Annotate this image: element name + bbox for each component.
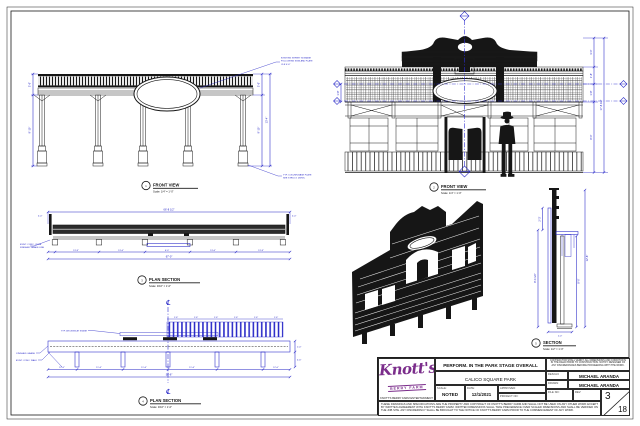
note-line: FOLLOWING SIGN AND PLATE [281,60,313,63]
dim-text: 1'-6" [254,317,259,319]
view-scale: Scale: 3/16" = 1'-0" [149,284,171,288]
front2-dim-left: 1'-8" [336,83,342,103]
view-scale: Scale: 1/4" = 1'-0" [153,189,174,193]
front1-label: 1 FRONT VIEW Scale: 1/4" = 1'-0" [142,181,198,193]
dim-text: 9'-10" [28,127,32,134]
dim-text: 11'-6" [189,367,195,369]
dim-text: 12'-0" [59,367,65,369]
general-note-text: CONTRACTOR SHALL VERIFY ALL DIMENSIONS A… [549,360,628,368]
scale-cell: SCALE: NOTED [435,385,465,401]
file-number-label: FILE NO: [548,391,560,394]
view-title: SECTION [543,340,562,345]
plan1-dim-bottom: 13'-9" 13'-6" 6'-0" 13'-6" 13'-9" 67'-0" [47,250,291,260]
plan2-dims-right: 2'-0" 4'-6" [294,340,302,368]
facade-oval-sign [433,79,497,104]
dim-text: 8'-4 1/2" [533,273,537,283]
view-title: PLAN SECTION [149,277,180,282]
dim-text: 1'-8" [336,90,340,95]
sheet-number-cell: 3 18 [601,389,630,416]
dim-text: 4'-0" [292,216,297,218]
logo-cell: Knott's BERRY FARM KNOTT'S BERRY FARM EN… [378,358,435,401]
plan2-deck: 1'-6" 1'-6" 1'-6" 1'-6" 1'-6" 1'-6" [120,317,283,340]
view-section: 8'-4 1/2" 2'-3" 8'-0" 12'-8" 2'-0" 5 SEC… [532,188,589,351]
dim-text: 13'-4" [265,117,269,124]
dim-text: 1'-8" [589,73,593,78]
note-line: SEE STRUCT. DWGS. [283,178,306,180]
dim-text: 17'-8 1/2" [599,99,603,110]
view-scale: Scale: 3/16" = 1'-0" [150,405,172,409]
note-line: FINISHED GRADE LINE [20,246,45,249]
dim-text: 8'-0" [589,134,593,139]
front1-note-bottom: TYP. COLUMN BASE PLATE SEE STRUCT. DWGS. [248,165,312,180]
date-cell: DATE: 12/1/2021 [465,385,498,401]
dim-text: 66'-8 1/2" [164,208,175,212]
dim-text: 1'-8" [589,90,593,95]
dim-text: 1'-6" [194,317,199,319]
plan2-dims-bottom: 12'-0" 11'-6" 11'-6" 11'-6" 12'-0" 58'-6… [47,367,291,378]
view-number: 3 [141,279,143,283]
view-number: 4 [142,400,144,404]
front2-dims-right: 3'-0" 1'-8" 1'-8" 8'-0" 17'-8 1/2" [583,37,608,174]
revision-cell: REV: [573,389,601,401]
dim-text: 1'-6" [274,317,279,319]
dim-text: 9'-10" [257,127,261,134]
drawn-by-name: MICHAEL ARANDA [569,383,629,388]
plan1-notes: EXIST. CONC. CURB FINISHED GRADE LINE [20,240,50,249]
dim-text: 11'-6" [141,367,147,369]
designed-by-name: MICHAEL ARANDA [569,374,629,379]
drawn-label: DRAWN: [548,382,559,385]
dim-text: 13'-9" [258,250,264,252]
sheet-total: 18 [618,405,627,414]
view-title: FRONT VIEW [153,183,179,188]
dim-text: 2'-0" [558,336,563,338]
view-number: 2 [433,186,435,190]
general-note-cell: CONTRACTOR SHALL VERIFY ALL DIMENSIONS A… [546,358,630,371]
project-name: CALICO SQUARE PARK [436,377,545,382]
sheet-title: PERFORM. IN THE PARK STAGE OVERALL [436,363,545,368]
view-scale: Scale: 1/4" = 1'-0" [441,191,462,195]
section-label: 5 SECTION Scale: 1/2" = 1'-0" [532,339,576,351]
dim-text: 13'-6" [210,250,216,252]
view-front-2: 3'-0" 1'-8" 1'-8" 8'-0" 17'-8 1/2" 1'-8"… [334,12,628,195]
dim-text: 3'-6" [257,82,261,87]
view-isometric [352,201,483,344]
dim-text: 67'-0" [166,255,173,259]
dim-text: 3'-6" [28,82,32,87]
view-front-1: 3'-6" 9'-10" 3'-6" 9'-10" 13'-4" EXISTIN… [28,57,314,194]
section-dims: 8'-4 1/2" 2'-3" 8'-0" 12'-8" 2'-0" [533,189,589,338]
designed-label-cell: DESIGN: [546,371,568,380]
revision-label: REV: [575,391,581,394]
view-scale: Scale: 1/2" = 1'-0" [543,347,564,351]
file-number-cell: FILE NO: [546,389,573,401]
view-number: 5 [535,342,537,346]
dim-text: 58'-6" [166,373,173,377]
datum-marker-top-icon [460,12,469,21]
centerline-symbol: ℄ [166,388,171,396]
dim-text: 1'-6" [234,317,239,319]
designed-label: DESIGN: [548,373,559,376]
note-line: EXIST. CONC. CURB [20,244,42,246]
scale-label: SCALE: [437,387,447,390]
dim-text: 2'-3" [538,216,542,221]
facade-porch [345,102,583,118]
inner-border [11,11,629,415]
note-line: TYP. COLUMN BASE PLATE [283,173,312,176]
disclaimer-cell: THESE DRAWINGS AND SPECIFICATIONS ARE TH… [378,401,601,416]
dim-text: 8'-0" [577,278,581,283]
centerline-symbol: ℄ [166,299,171,307]
note-line: TYP. DECKING AT STAGE [61,330,88,333]
knotts-logo: Knott's [379,361,435,378]
knotts-logo-banner: BERRY FARM [388,384,426,392]
project-cell: CALICO SQUARE PARK [435,371,546,385]
plan2-slab [48,341,290,367]
plan1-beam: 4'-0" 4'-0" [38,214,297,247]
approved-label: APPROVED: [500,387,516,390]
dim-text: 4'-0" [38,216,43,218]
dim-text: 13'-6" [118,250,124,252]
plan1-label: 3 PLAN SECTION Scale: 3/16" = 1'-0" [138,276,200,288]
view-plan-1: 66'-8 1/2" 4'-0" 4'-0" 13'-9" 13'-6" 6'-… [20,208,297,288]
view-plan-2: ℄ ℄ 1'-6" 1'-6" 1'-6" 1'-6" 1'-6" 1'-6" [16,299,302,409]
plan2-label: 4 PLAN SECTION Scale: 3/16" = 1'-0" [139,397,201,409]
plan2-notes: TYP. DECKING AT STAGE FINISHED GRADE EXI… [16,330,120,363]
scale-value: NOTED [436,392,464,397]
job-number-cell: PROJECT NO: [498,393,546,401]
dim-text: 12'-0" [273,367,279,369]
note-line: FINISHED GRADE [16,352,35,355]
oval-sign-blank [134,77,200,111]
view-title: PLAN SECTION [150,398,181,403]
view-number: 1 [145,184,147,188]
drawn-value-cell: MICHAEL ARANDA [568,380,630,389]
designed-value-cell: MICHAEL ARANDA [568,371,630,380]
front2-label: 2 FRONT VIEW Scale: 1/4" = 1'-0" [430,183,486,195]
dim-text: 13'-9" [73,250,79,252]
dim-text: 6'-0" [165,250,170,252]
note-line: CLR 4'-6" [281,64,291,66]
approved-cell: APPROVED: [498,385,546,393]
dim-text: 1'-6" [174,317,179,319]
dim-text: 4'-6" [297,360,302,362]
title-block: Knott's BERRY FARM KNOTT'S BERRY FARM EN… [377,357,629,415]
dim-text: 12'-8" [585,255,589,262]
dim-text: 3'-0" [589,49,593,54]
dim-text: 1'-6" [214,317,219,319]
note-line: EXIST. CONC. WALK [16,359,38,362]
drawn-label-cell: DRAWN: [546,380,568,389]
view-title: FRONT VIEW [441,184,467,189]
date-value: 12/1/2021 [466,392,497,397]
sheet-number: 3 [605,391,611,402]
drawing-sheet: 3'-6" 9'-10" 3'-6" 9'-10" 13'-4" EXISTIN… [0,0,640,426]
job-number-label: PROJECT NO: [500,395,519,398]
dim-text: 2'-0" [297,347,302,349]
note-line: EXISTING STREET SIGNAGE [281,57,312,60]
dim-text: 11'-6" [96,367,102,369]
front1-dims-left: 3'-6" 9'-10" [28,73,39,167]
facade-windows [345,118,583,173]
date-label: DATE: [467,387,475,390]
disclaimer-text: THESE DRAWINGS AND SPECIFICATIONS ARE TH… [381,403,598,412]
sheet-title-cell: PERFORM. IN THE PARK STAGE OVERALL [435,358,546,371]
plan1-dim-top: 66'-8 1/2" [47,208,291,224]
